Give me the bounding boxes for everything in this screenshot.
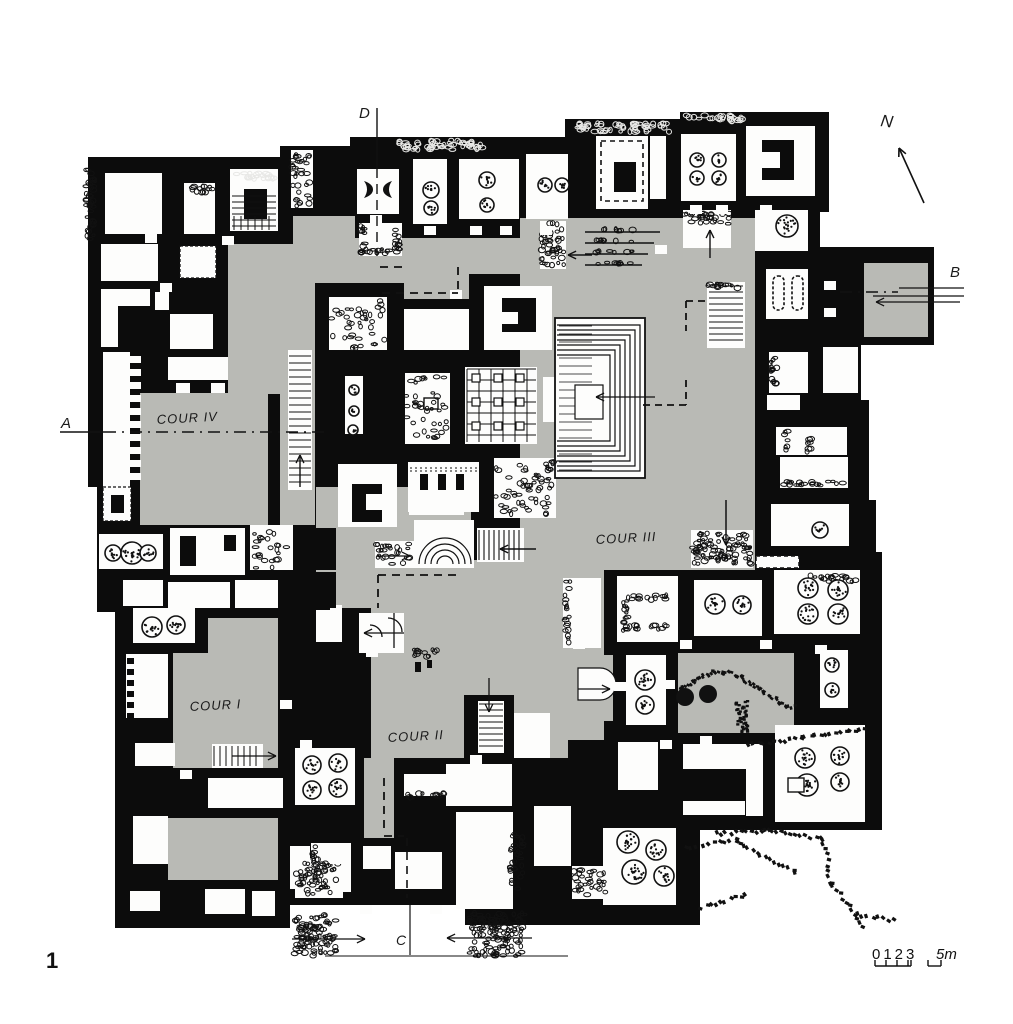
svg-text:1: 1 [46, 948, 58, 973]
svg-text:B: B [950, 264, 960, 281]
svg-text:C: C [396, 932, 407, 948]
svg-text:COUR III: COUR III [595, 529, 656, 547]
svg-text:COUR IV: COUR IV [156, 409, 218, 427]
svg-text:5m: 5m [936, 946, 957, 963]
svg-text:D: D [359, 105, 370, 122]
svg-text:COUR I: COUR I [189, 696, 241, 714]
svg-text:COUR II: COUR II [387, 727, 444, 745]
svg-text:A: A [60, 415, 71, 432]
